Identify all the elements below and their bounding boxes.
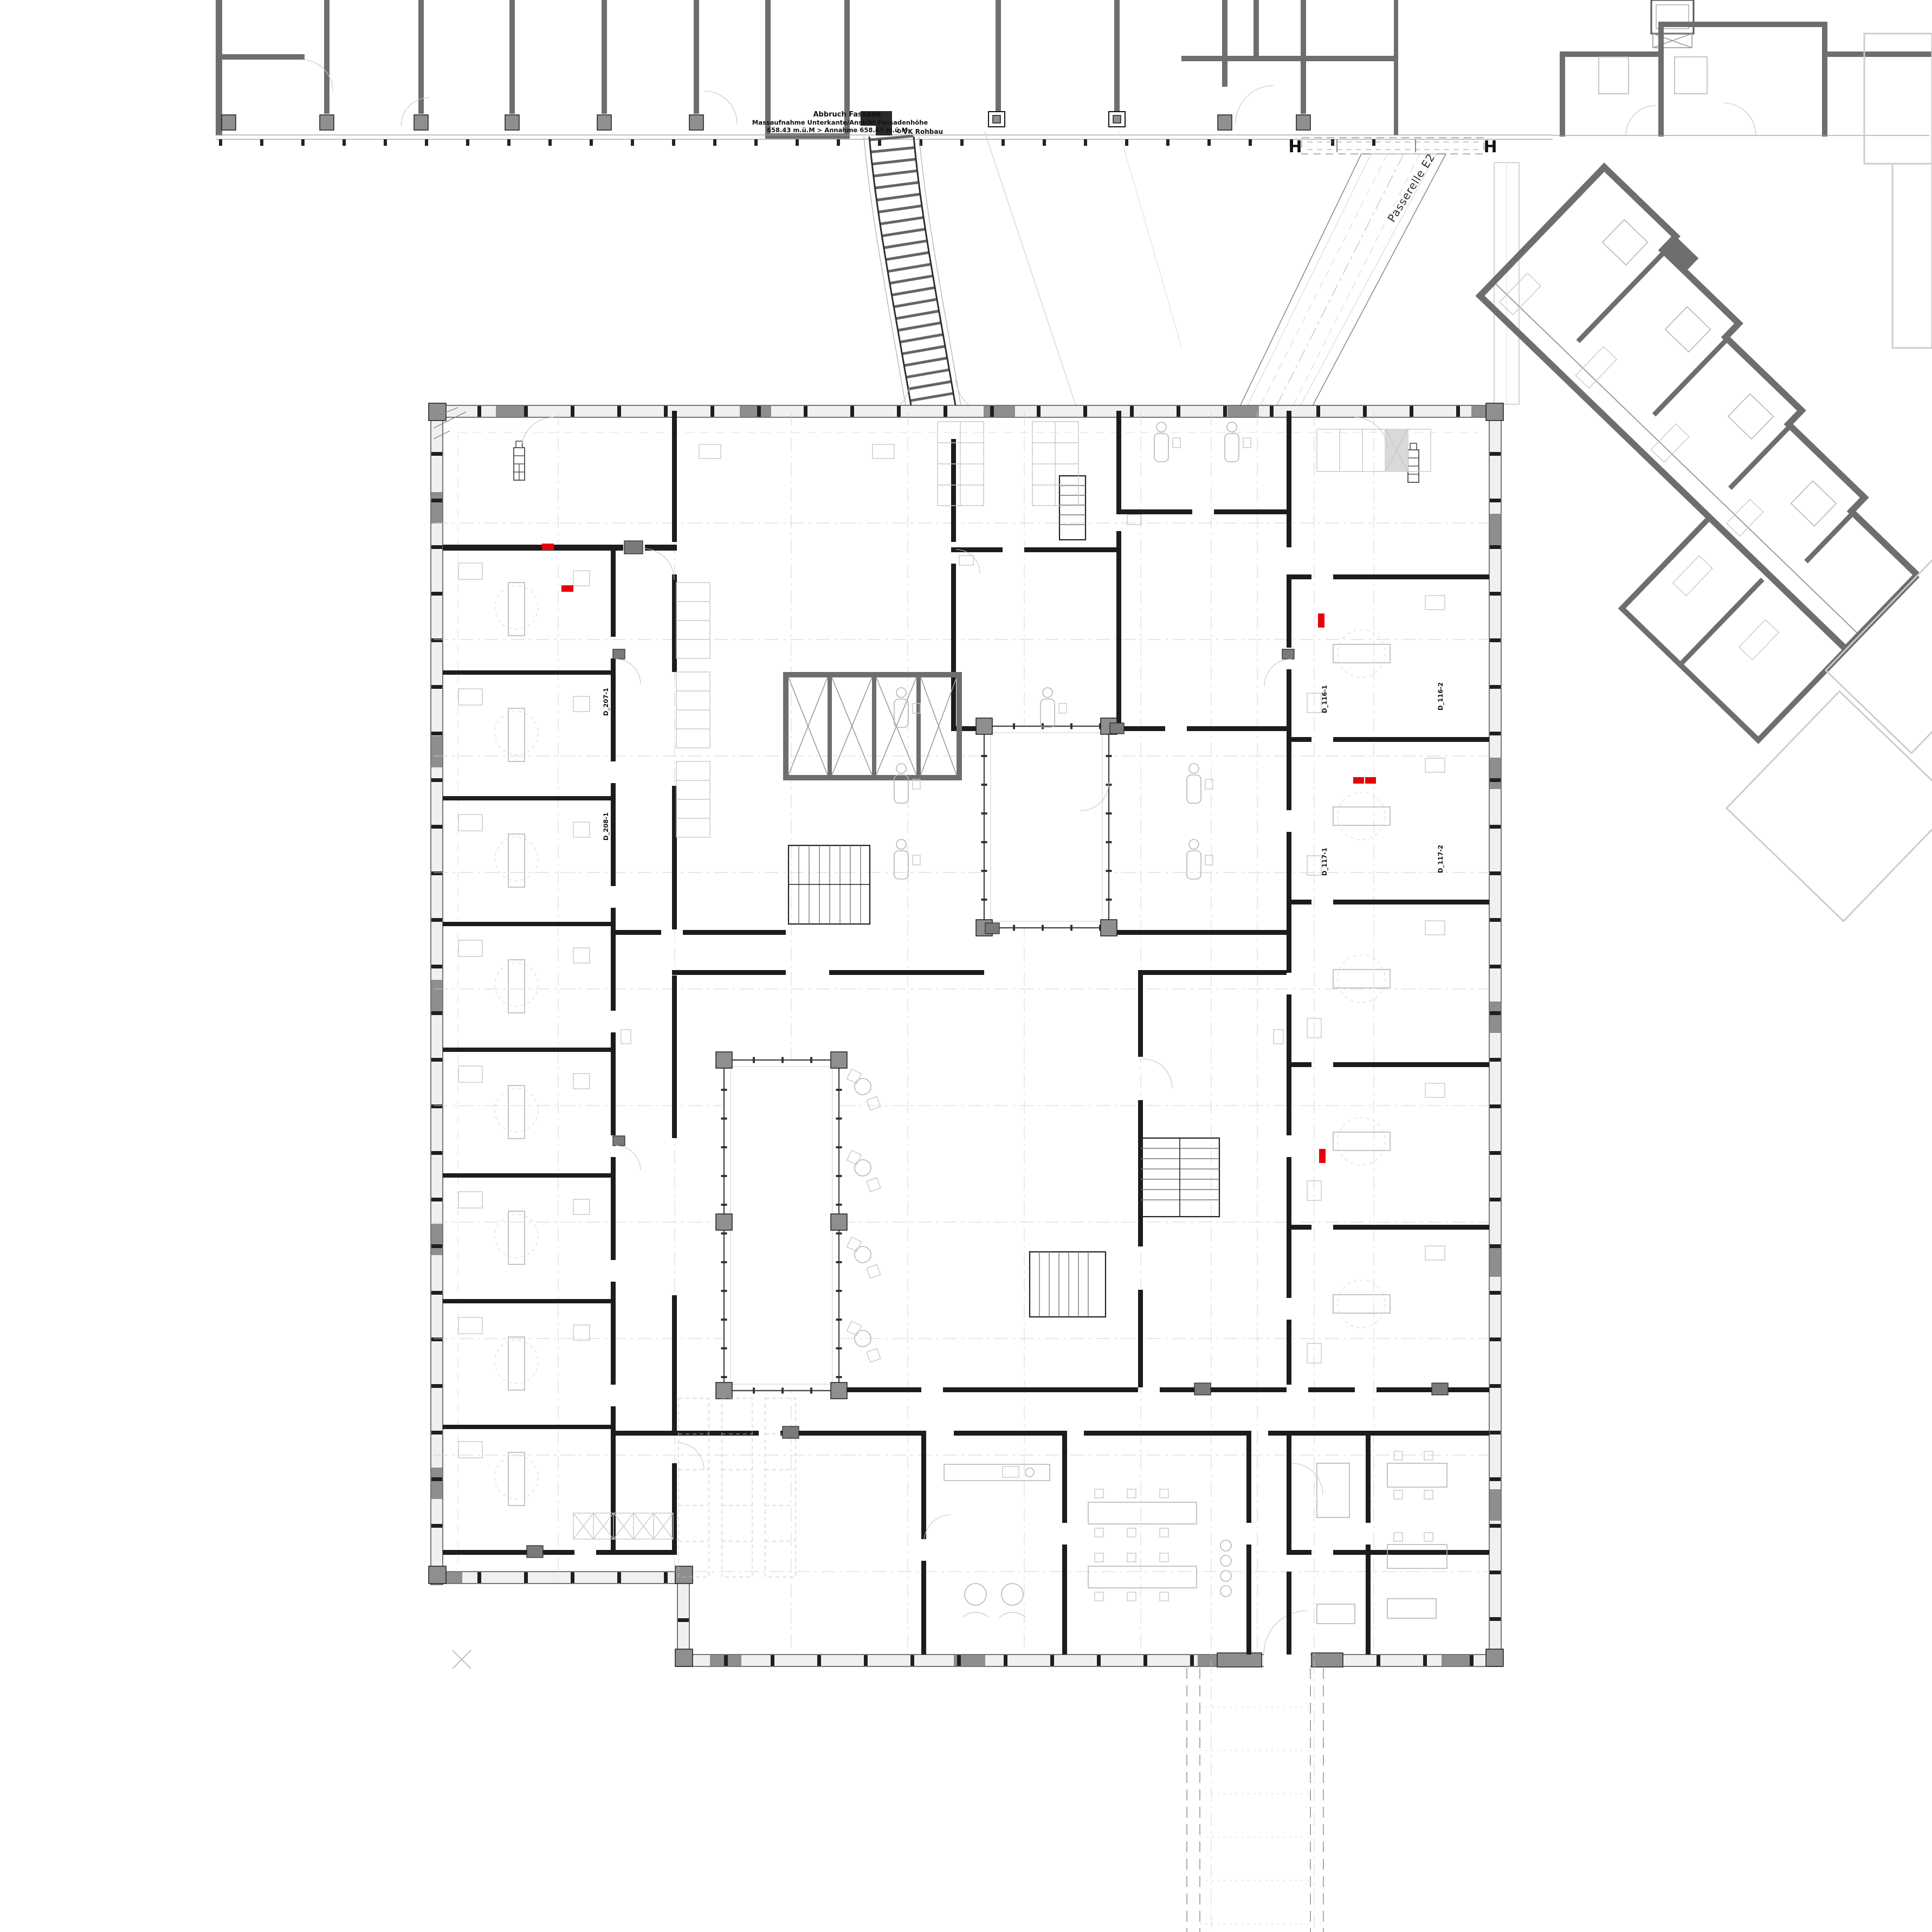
seminar-rooms — [1317, 1451, 1447, 1624]
hydrant-marker-right: H — [1483, 138, 1497, 157]
elevator-core — [783, 672, 962, 780]
stair-icon — [789, 845, 870, 924]
hydrant-marker-left: H — [1288, 138, 1302, 157]
east-wing-angled — [1341, 163, 1932, 921]
planned-workstations — [679, 1398, 796, 1577]
survey-annotation: Abbruch Fassade Massaufnahme Unterkante/… — [752, 111, 943, 135]
annotation-line-2: Massaufnahme Unterkante/Ansicht Fassaden… — [752, 119, 928, 126]
room-label: D_117-1 — [1321, 848, 1329, 876]
stair-icon-2 — [1141, 1138, 1219, 1217]
site-line-2 — [1119, 132, 1181, 347]
survey-totem-icon — [514, 441, 525, 480]
courtyard-west — [716, 1052, 847, 1399]
courtyard-east — [976, 718, 1117, 936]
cafeteria — [944, 1464, 1231, 1617]
existing-outline-fragment-2 — [1892, 164, 1932, 348]
room-label: D_116-1 — [1321, 685, 1329, 713]
column-icon — [988, 112, 1125, 127]
passerelle-e2-ramp: H H Passerelle E2 — [1237, 138, 1519, 413]
red-door-markers — [542, 544, 1376, 1163]
lockers-row — [573, 1513, 673, 1539]
room-label: D_116-2 — [1437, 682, 1445, 710]
annotation-line-1: Abbruch Fassade — [813, 111, 881, 119]
survey-cross-icon — [453, 1650, 471, 1669]
room-label: D_207-1 — [602, 688, 610, 716]
underground-corridor — [1187, 1668, 1323, 1932]
site-line — [985, 132, 1076, 405]
interior-walls — [443, 411, 1489, 1655]
survey-totem-icon-2 — [1408, 443, 1419, 482]
entrance-canopy — [1217, 1653, 1262, 1667]
passerelle-label: Passerelle E2 — [1385, 151, 1438, 225]
stair-icon-4 — [1030, 1252, 1106, 1317]
floor-plan-sheet: Abbruch Fassade Massaufnahme Unterkante/… — [0, 0, 1932, 1932]
entrance-canopy-2 — [1311, 1653, 1343, 1667]
operating-rooms-west — [458, 563, 590, 1505]
annotation-line-3: 658.43 m.ü.M > Annahme 658.47 m.ü.M — [767, 126, 908, 134]
main-building-facade — [429, 403, 1503, 1668]
room-label: D_117-2 — [1437, 845, 1445, 873]
west-passerelle-bridge — [864, 137, 975, 411]
reference-grid — [434, 412, 1488, 1932]
annotation-vk: VK Rohbau — [903, 128, 943, 135]
room-label: D_208-1 — [602, 812, 610, 841]
floor-plan-drawing: Abbruch Fassade Massaufnahme Unterkante/… — [0, 0, 1932, 1932]
lounge-seating — [847, 1069, 881, 1362]
